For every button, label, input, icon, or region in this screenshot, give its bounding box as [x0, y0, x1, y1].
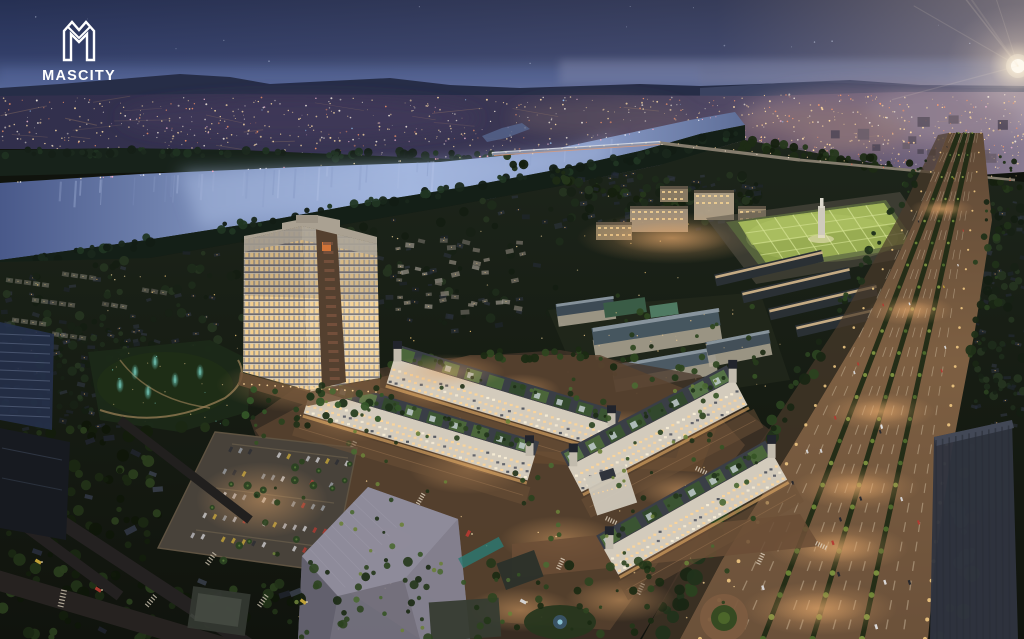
svg-text:MASCITY: MASCITY — [42, 68, 116, 84]
